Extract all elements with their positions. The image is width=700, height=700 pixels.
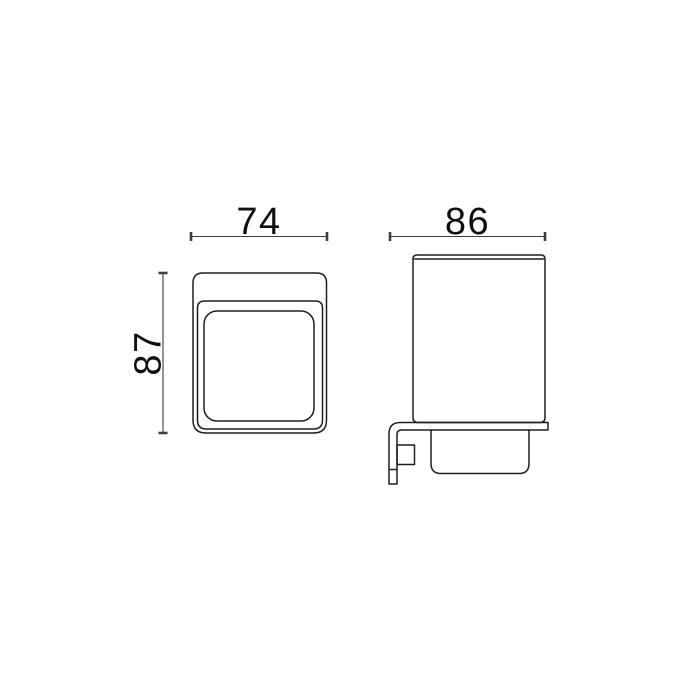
side-view bbox=[389, 255, 548, 484]
dimension-annotations bbox=[159, 232, 546, 433]
dimension-labels: 74 86 87 bbox=[128, 201, 491, 376]
holder-front-outline bbox=[193, 273, 327, 433]
front-height-label: 87 bbox=[128, 330, 170, 375]
front-view bbox=[193, 273, 327, 433]
tumbler-holder-drawing-svg: 74 86 87 bbox=[0, 0, 700, 700]
side-depth-label: 86 bbox=[445, 201, 490, 243]
wall-bracket-outline bbox=[389, 423, 548, 485]
front-width-label: 74 bbox=[236, 201, 281, 243]
tumbler-side-outline bbox=[413, 255, 545, 423]
wall-mount-block-outline bbox=[397, 445, 415, 465]
holder-front-lip-outline bbox=[198, 301, 323, 429]
glass-opening-outline bbox=[204, 311, 314, 421]
holder-ring-side-outline bbox=[431, 430, 529, 474]
technical-drawing: 74 86 87 bbox=[0, 0, 700, 700]
